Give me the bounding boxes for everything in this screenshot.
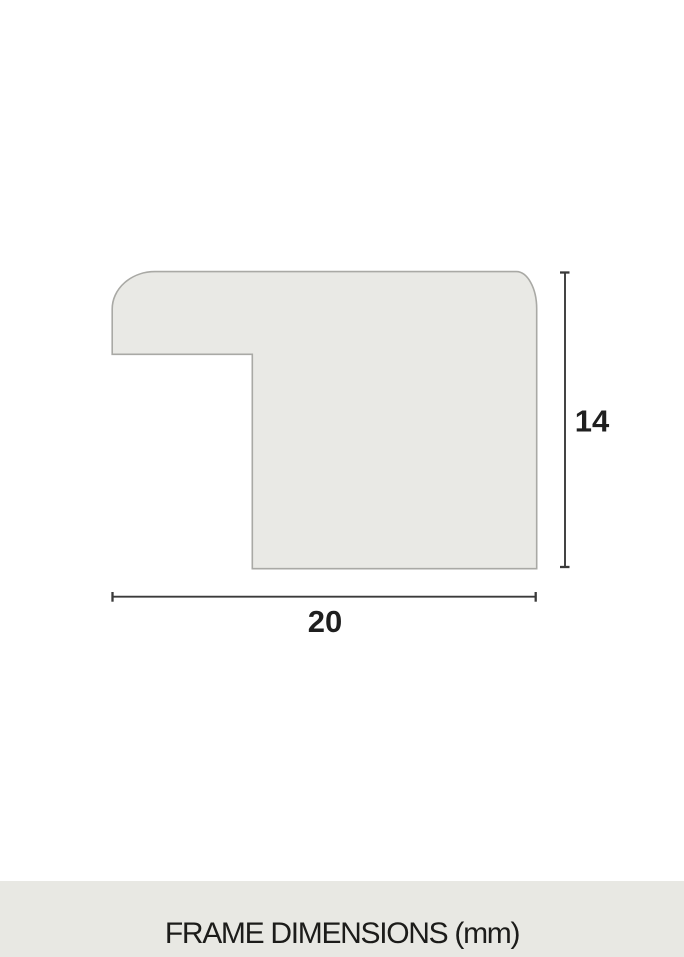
svg-text:14: 14 xyxy=(575,404,610,439)
svg-text:20: 20 xyxy=(308,604,342,639)
